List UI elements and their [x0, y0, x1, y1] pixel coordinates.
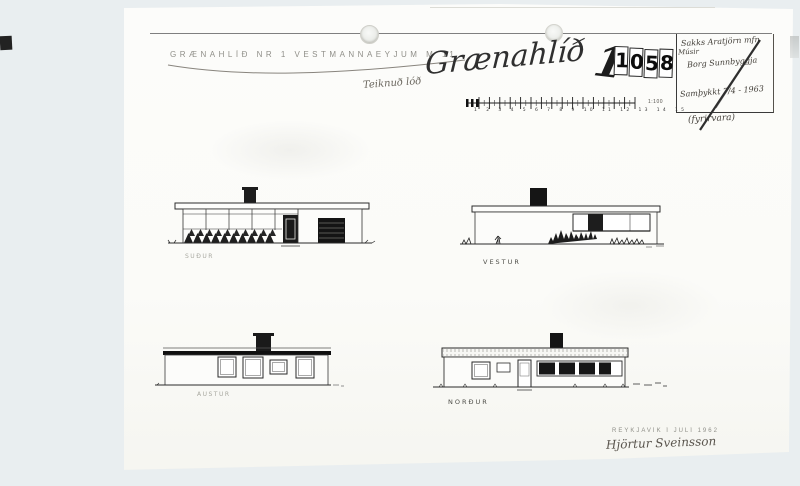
- stamp-digit: 0: [629, 48, 644, 77]
- paper-top-edge: [430, 7, 715, 8]
- elevation-north-drawing: [433, 326, 668, 406]
- cross-out-stroke: [676, 34, 772, 136]
- scanned-drawing-page: GRÆNAHLÍÐ NR 1 VESTMANNAEYJUM M 11 Græna…: [0, 0, 800, 486]
- ruler-numbers: 1 2 3 4 5 6 7 8 9 10 11 12 13 14 15: [474, 108, 687, 113]
- elevation-west-label: VESTUR: [483, 258, 521, 266]
- elevation-east-drawing: [155, 330, 345, 400]
- elevation-south-label: SUÐUR: [185, 253, 214, 260]
- scale-ruler: [463, 92, 648, 120]
- elevation-west-drawing: [460, 186, 665, 266]
- elevation-north-label: NORÐUR: [448, 398, 489, 406]
- footer-typed-line: REYKJAVÍK Í JÚLÍ 1962: [612, 428, 719, 434]
- archive-number-stamp: 1 0 5 8: [613, 46, 673, 79]
- stamp-digit: 8: [658, 49, 673, 78]
- stamp-digit: 5: [643, 49, 658, 78]
- stamp-digit: 1: [614, 46, 629, 75]
- elevation-east-label: AUSTUR: [197, 391, 231, 398]
- scan-edge-mark: [0, 36, 12, 51]
- ruler-scale-label: 1:100: [648, 99, 663, 105]
- hole-punch-icon: [360, 25, 379, 44]
- scan-edge-smudge: [790, 36, 799, 58]
